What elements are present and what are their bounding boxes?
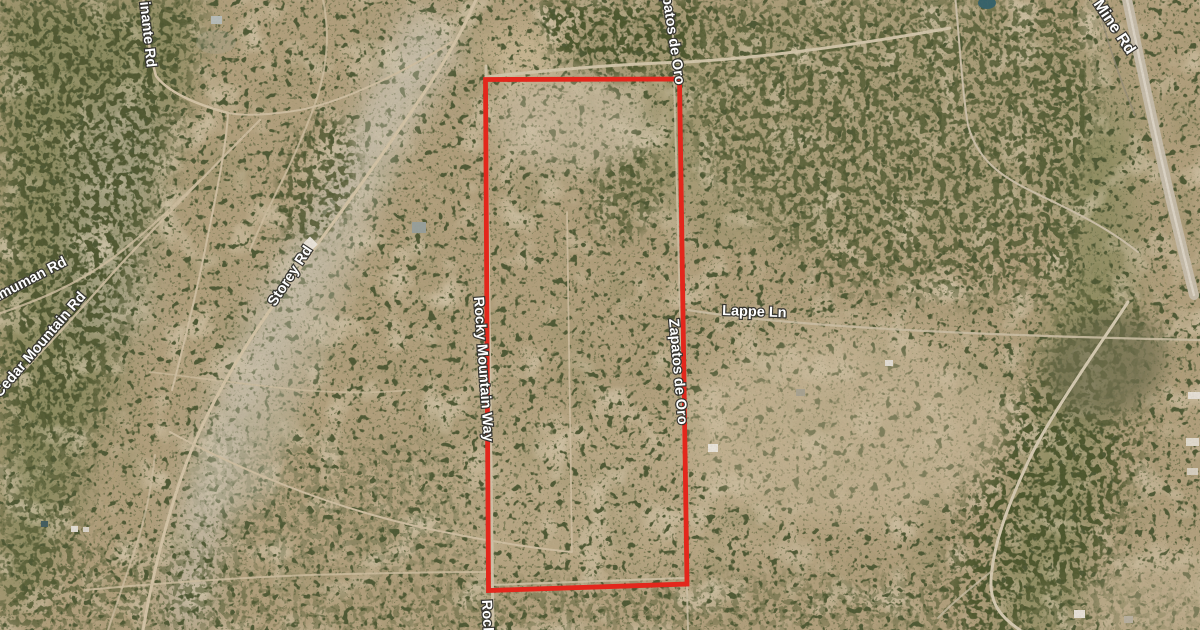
- svg-text:Lappe Ln: Lappe Ln: [722, 303, 787, 321]
